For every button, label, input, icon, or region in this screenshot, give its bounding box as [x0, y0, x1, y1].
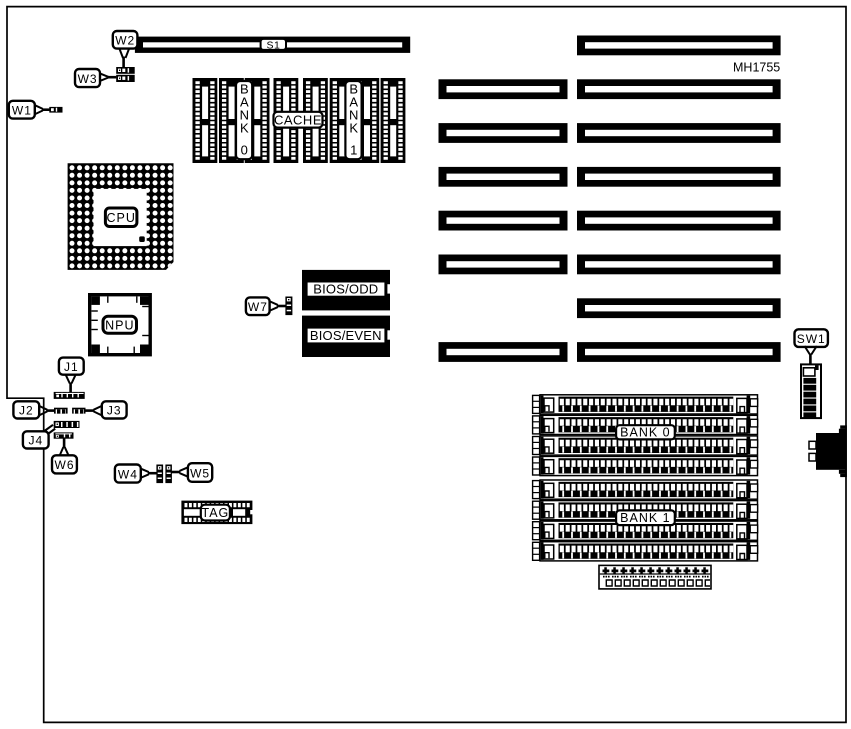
- svg-text:BANK 0: BANK 0: [620, 426, 670, 440]
- svg-text:CPU: CPU: [106, 211, 135, 225]
- svg-text:W7: W7: [248, 300, 268, 314]
- svg-text:W1: W1: [12, 103, 32, 117]
- svg-text:BIOS/ODD: BIOS/ODD: [313, 282, 378, 297]
- svg-text:J2: J2: [19, 404, 34, 418]
- svg-text:BANK 1: BANK 1: [620, 511, 670, 525]
- svg-text:BIOS/EVEN: BIOS/EVEN: [310, 328, 382, 343]
- svg-text:K: K: [349, 121, 358, 136]
- svg-text:1: 1: [350, 143, 357, 158]
- svg-text:NPU: NPU: [105, 319, 134, 333]
- svg-text:J4: J4: [28, 434, 43, 448]
- svg-text:TAG: TAG: [202, 506, 230, 520]
- svg-text:K: K: [240, 121, 249, 136]
- svg-text:W6: W6: [55, 458, 75, 472]
- svg-text:W5: W5: [190, 466, 210, 480]
- svg-text:SW1: SW1: [797, 332, 826, 346]
- svg-text:W2: W2: [115, 34, 135, 48]
- svg-text:J1: J1: [64, 360, 79, 374]
- svg-text:0: 0: [241, 143, 248, 158]
- svg-text:W4: W4: [118, 467, 138, 481]
- svg-text:MH1755: MH1755: [733, 61, 780, 75]
- svg-text:W3: W3: [78, 72, 98, 86]
- svg-text:J3: J3: [107, 404, 122, 418]
- svg-text:CACHE: CACHE: [274, 112, 322, 127]
- svg-text:S1: S1: [266, 39, 280, 51]
